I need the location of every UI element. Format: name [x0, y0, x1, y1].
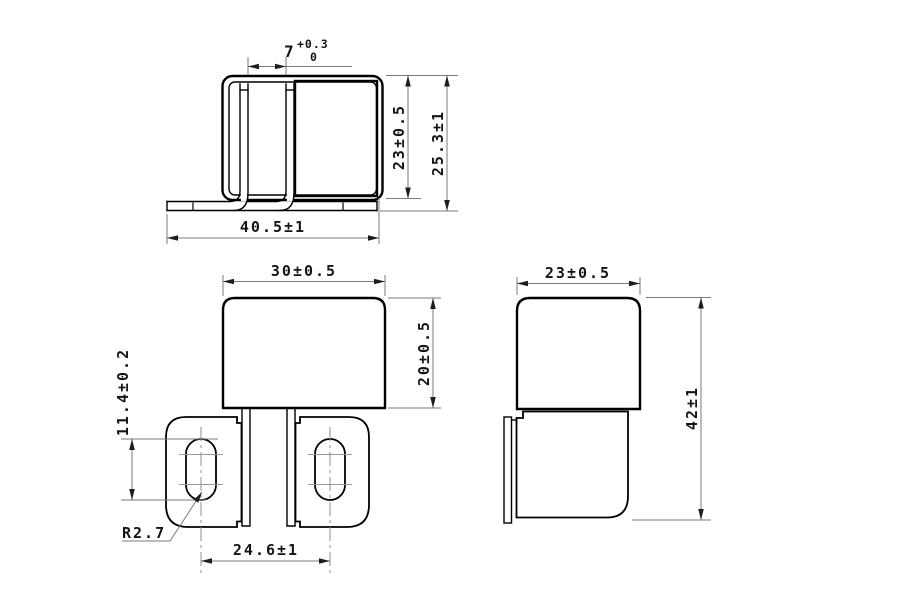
side-height-arrow-bottom	[698, 509, 704, 520]
base-plate-ends	[167, 202, 377, 211]
strip2-mask	[287, 83, 293, 201]
dim-case-height: 23±0.5	[390, 104, 408, 170]
dim-front-body-width: 30±0.5	[271, 262, 337, 280]
left-mounting-lug	[166, 417, 242, 527]
side-upper-body-outline	[517, 298, 640, 409]
dim-side-body-width: 23±0.5	[545, 264, 611, 282]
front-terminal1	[242, 408, 250, 526]
pin-gap-arrow-left	[248, 64, 259, 70]
dim-hole-pitch: 24.6±1	[233, 541, 299, 559]
side-height-arrow-top	[698, 298, 704, 309]
case-height-arrow-bottom	[405, 188, 411, 199]
overall-height-arrow-bottom	[444, 200, 450, 211]
front-height-arrow-bottom	[430, 397, 436, 408]
case-compartment	[295, 81, 377, 196]
terminal1-left-edge	[230, 84, 240, 202]
terminal2-left-edge	[276, 84, 286, 202]
overall-height-arrow-top	[444, 76, 450, 87]
front-terminal2	[287, 408, 295, 526]
dim-front-body-height: 20±0.5	[415, 320, 433, 386]
right-mounting-lug	[296, 417, 370, 527]
hole-pitch-arrow-left	[201, 558, 212, 564]
slot-length-arrow-bottom	[129, 489, 135, 500]
case-height-arrow-top	[405, 76, 411, 87]
front-height-arrow-top	[430, 298, 436, 309]
dim-pin-gap-tol-upper: +0.3	[297, 37, 329, 51]
slot-length-arrow-top	[129, 439, 135, 450]
base-width-arrow-right	[368, 235, 379, 241]
dim-overall-height: 25.3±1	[429, 110, 447, 176]
side-terminal-strip	[504, 417, 512, 523]
front-body-outline	[223, 298, 385, 408]
base-width-arrow-left	[167, 235, 178, 241]
case-inner-liner	[229, 82, 377, 195]
dim-pin-gap-tol-lower: 0	[310, 50, 318, 64]
front-width-arrow-right	[374, 279, 385, 285]
hole-crosshair-lines	[179, 455, 352, 485]
view-right-side: 23±0.5 42±1	[504, 264, 711, 523]
technical-drawing-page: 7 +0.3 0 23±0.5 25.3±1 40.5±1	[0, 0, 904, 600]
base-plate-joint-ticks	[193, 203, 343, 211]
front-width-arrow-left	[223, 279, 234, 285]
dim-slot-length: 11.4±0.2	[114, 348, 132, 436]
side-width-arrow-left	[517, 281, 528, 287]
relay-dimension-drawing: 7 +0.3 0 23±0.5 25.3±1 40.5±1	[0, 0, 904, 600]
hole-pitch-arrow-right	[319, 558, 330, 564]
dim-slot-radius: R2.7	[122, 524, 166, 542]
side-lower-body-outline	[517, 412, 629, 518]
strip1-mask	[241, 83, 247, 201]
view-front: 30±0.5 20±0.5 11.4±0.2 R2.7 24.6±1	[114, 262, 441, 573]
dim-pin-gap-value: 7	[284, 42, 296, 61]
pin-gap-arrow-right	[275, 64, 286, 70]
side-width-arrow-right	[629, 281, 640, 287]
dim-base-width: 40.5±1	[240, 218, 306, 236]
dim-side-overall-height: 42±1	[683, 386, 701, 430]
view-side-profile: 7 +0.3 0 23±0.5 25.3±1 40.5±1	[167, 37, 458, 244]
slot-length-extension-lines	[121, 439, 218, 500]
